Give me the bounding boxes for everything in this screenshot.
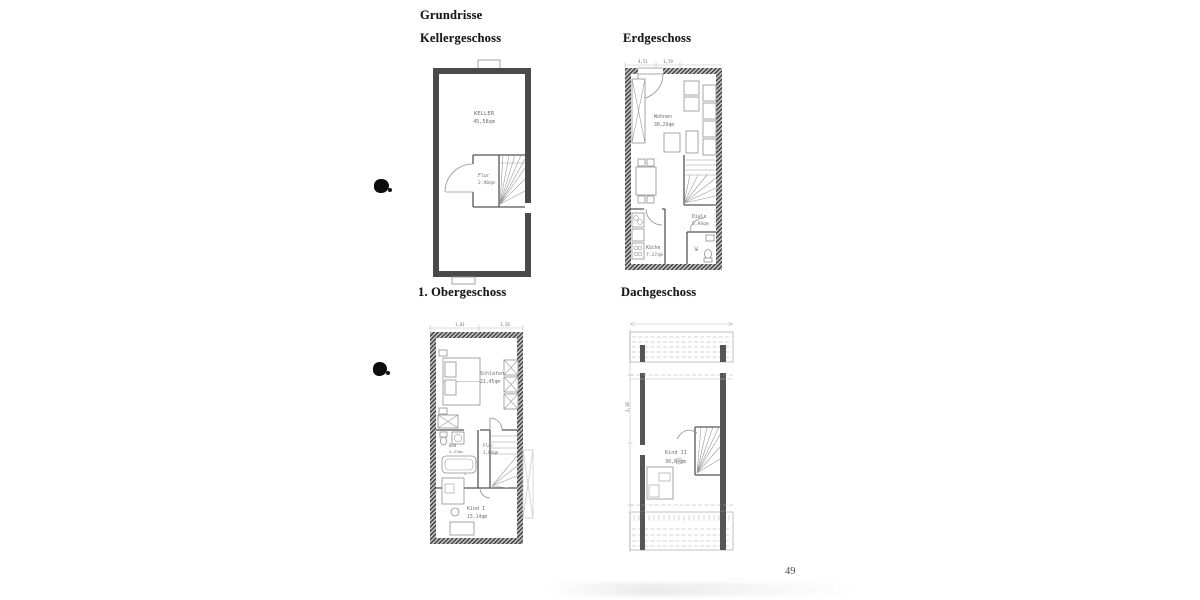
room-area: 15,14qm [467, 514, 487, 520]
room-label: Küche [646, 245, 661, 251]
walls [433, 60, 531, 284]
room-label: Schlafen [480, 371, 504, 377]
room-area: 2,90qm [478, 180, 495, 186]
room-label: Bad [449, 443, 457, 448]
room-label: WC [694, 246, 699, 251]
room-labels: KELLER 45,58qm Flur 2,90qm [473, 111, 495, 186]
room-area: 2,86qm [483, 450, 499, 455]
floorplan-kellergeschoss: KELLER 45,58qm Flur 2,90qm [425, 55, 540, 285]
room-label: Kind II [665, 450, 687, 456]
stairs-icon [499, 155, 525, 204]
roof-slope-bottom [630, 512, 733, 550]
door-arc [445, 164, 473, 192]
room-label: Flur [478, 173, 490, 179]
floorplan-dachgeschoss: 2,18 [615, 315, 745, 555]
dimension-line: 4,51 1,79 [625, 59, 722, 68]
dim-label: 4,51 [638, 59, 648, 64]
room-area: 5,47qm [449, 449, 463, 454]
dining-table [636, 159, 656, 203]
page-title: Grundrisse [420, 8, 482, 23]
dim-label: 2,18 [625, 402, 630, 412]
room-label: Diele [692, 214, 707, 220]
room-area: 21,45qm [480, 379, 500, 385]
room-area: 30,29qm [654, 122, 674, 128]
dim-label: 1,26 [500, 322, 510, 327]
page-number: 49 [785, 566, 796, 577]
floorplan-obergeschoss: 1,01 1,26 1,06 [424, 320, 539, 550]
room-labels: Kind II 30,84qm [665, 450, 687, 465]
plan-title-dachgeschoss: Dachgeschoss [621, 285, 696, 300]
bedroom-furniture [438, 350, 518, 428]
room-label: Flur [483, 443, 494, 449]
living-furniture [632, 79, 716, 155]
roof-slope-top [630, 332, 733, 362]
hole-punch-mark [374, 179, 389, 193]
hole-punch-mark [373, 362, 387, 376]
room-label: KELLER [474, 111, 495, 117]
scanned-page: Grundrisse Kellergeschoss Erdgeschoss 1.… [0, 0, 1200, 600]
floorplan-erdgeschoss: 4,51 1,79 [618, 55, 733, 275]
plan-title-obergeschoss: 1. Obergeschoss [418, 285, 506, 300]
scan-edge-artifact [545, 583, 855, 596]
dim-label: 1,79 [663, 59, 673, 64]
dim-label: 1,01 [455, 322, 465, 327]
room-area: 45,58qm [473, 119, 495, 125]
plan-title-erdgeschoss: Erdgeschoss [623, 31, 691, 46]
room-area: 30,84qm [665, 459, 686, 465]
stairs-icon [684, 155, 716, 205]
room-label: Wohnen [654, 114, 672, 120]
room-label: Kind I [467, 506, 485, 512]
walls [630, 345, 733, 528]
room-area: 5,94qm [692, 221, 709, 227]
room-area: 7,17qm [646, 252, 663, 258]
stairs-icon [490, 430, 533, 518]
plan-title-kellergeschoss: Kellergeschoss [420, 31, 501, 46]
